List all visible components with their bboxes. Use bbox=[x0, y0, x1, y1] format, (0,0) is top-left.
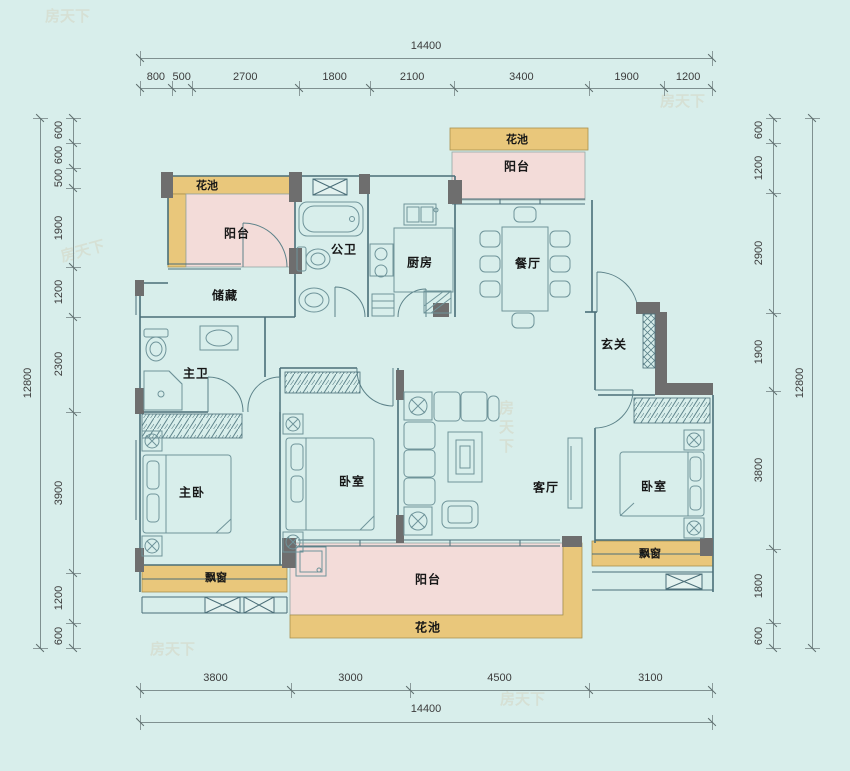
dim-segment-label: 800 bbox=[147, 71, 165, 83]
zone-flowerbed-topleft bbox=[168, 176, 295, 194]
dim-segment-label: 600 bbox=[53, 146, 65, 164]
floorplan-drawing bbox=[0, 0, 850, 771]
room-label-bedroom-right: 卧室 bbox=[641, 478, 667, 495]
dim-line bbox=[773, 118, 774, 648]
dim-segment-label: 1200 bbox=[676, 71, 700, 83]
dim-total-label: 14400 bbox=[411, 40, 442, 52]
dim-segment-label: 500 bbox=[173, 71, 191, 83]
dim-segment-label: 1200 bbox=[53, 280, 65, 304]
wardrobe-hatch bbox=[142, 314, 710, 438]
dim-segment-label: 2900 bbox=[753, 240, 765, 264]
dim-segment-label: 3000 bbox=[338, 672, 362, 684]
room-label-public-bath: 公卫 bbox=[331, 241, 357, 258]
room-label-foyer: 玄关 bbox=[601, 336, 627, 353]
dim-line bbox=[140, 722, 712, 723]
floorplan-canvas: 花池 阳台 储藏 公卫 厨房 餐厅 花池 阳台 玄关 主卫 主卧 卧室 客厅 卧… bbox=[0, 0, 850, 771]
room-label-dining: 餐厅 bbox=[515, 255, 541, 272]
dim-segment-label: 2300 bbox=[53, 352, 65, 376]
dim-segment-label: 600 bbox=[753, 626, 765, 644]
dim-line bbox=[140, 58, 712, 59]
dim-segment-label: 1800 bbox=[753, 574, 765, 598]
dim-segment-label: 4500 bbox=[487, 672, 511, 684]
dim-line bbox=[40, 118, 41, 648]
dim-line bbox=[812, 118, 813, 648]
coffee-table bbox=[448, 432, 482, 482]
dim-total-label: 12800 bbox=[22, 368, 34, 399]
dim-segment-label: 1900 bbox=[614, 71, 638, 83]
room-label-flowerbed-bottom: 花池 bbox=[415, 619, 441, 636]
dim-segment-label: 1200 bbox=[53, 586, 65, 610]
dim-segment-label: 600 bbox=[53, 626, 65, 644]
dim-segment-label: 1200 bbox=[753, 155, 765, 179]
dim-segment-label: 3800 bbox=[753, 458, 765, 482]
dim-segment-label: 500 bbox=[53, 169, 65, 187]
room-label-master-bed: 主卧 bbox=[179, 484, 205, 501]
dim-line bbox=[140, 690, 712, 691]
room-label-baywindow-left: 飘窗 bbox=[205, 569, 227, 585]
dim-segment-label: 3400 bbox=[509, 71, 533, 83]
room-label-balcony-topleft: 阳台 bbox=[224, 225, 250, 242]
dim-segment-label: 1800 bbox=[322, 71, 346, 83]
dim-line bbox=[140, 88, 712, 89]
dim-total-label: 12800 bbox=[794, 368, 806, 399]
room-label-flowerbed-topleft: 花池 bbox=[196, 177, 218, 193]
dim-segment-label: 600 bbox=[53, 121, 65, 139]
room-label-balcony-topright: 阳台 bbox=[504, 158, 530, 175]
sofa-set bbox=[404, 392, 499, 535]
room-label-storage: 储藏 bbox=[212, 287, 238, 304]
room-label-living: 客厅 bbox=[533, 479, 559, 496]
dim-segment-label: 1900 bbox=[753, 340, 765, 364]
dim-segment-label: 3100 bbox=[638, 672, 662, 684]
dim-line bbox=[73, 118, 74, 648]
dim-segment-label: 3900 bbox=[53, 480, 65, 504]
dim-segment-label: 2100 bbox=[400, 71, 424, 83]
room-label-flowerbed-topright: 花池 bbox=[506, 131, 528, 147]
dim-segment-label: 3800 bbox=[203, 672, 227, 684]
room-label-balcony-bottom: 阳台 bbox=[415, 571, 441, 588]
room-label-bedroom-middle: 卧室 bbox=[339, 473, 365, 490]
dim-segment-label: 2700 bbox=[233, 71, 257, 83]
dim-segment-label: 1900 bbox=[53, 215, 65, 239]
dim-segment-label: 600 bbox=[753, 121, 765, 139]
room-label-master-bath: 主卫 bbox=[183, 365, 209, 382]
dim-total-label: 14400 bbox=[411, 703, 442, 715]
tv-cabinet bbox=[568, 438, 582, 508]
room-label-baywindow-right: 飘窗 bbox=[639, 545, 661, 561]
room-label-kitchen: 厨房 bbox=[407, 254, 433, 271]
